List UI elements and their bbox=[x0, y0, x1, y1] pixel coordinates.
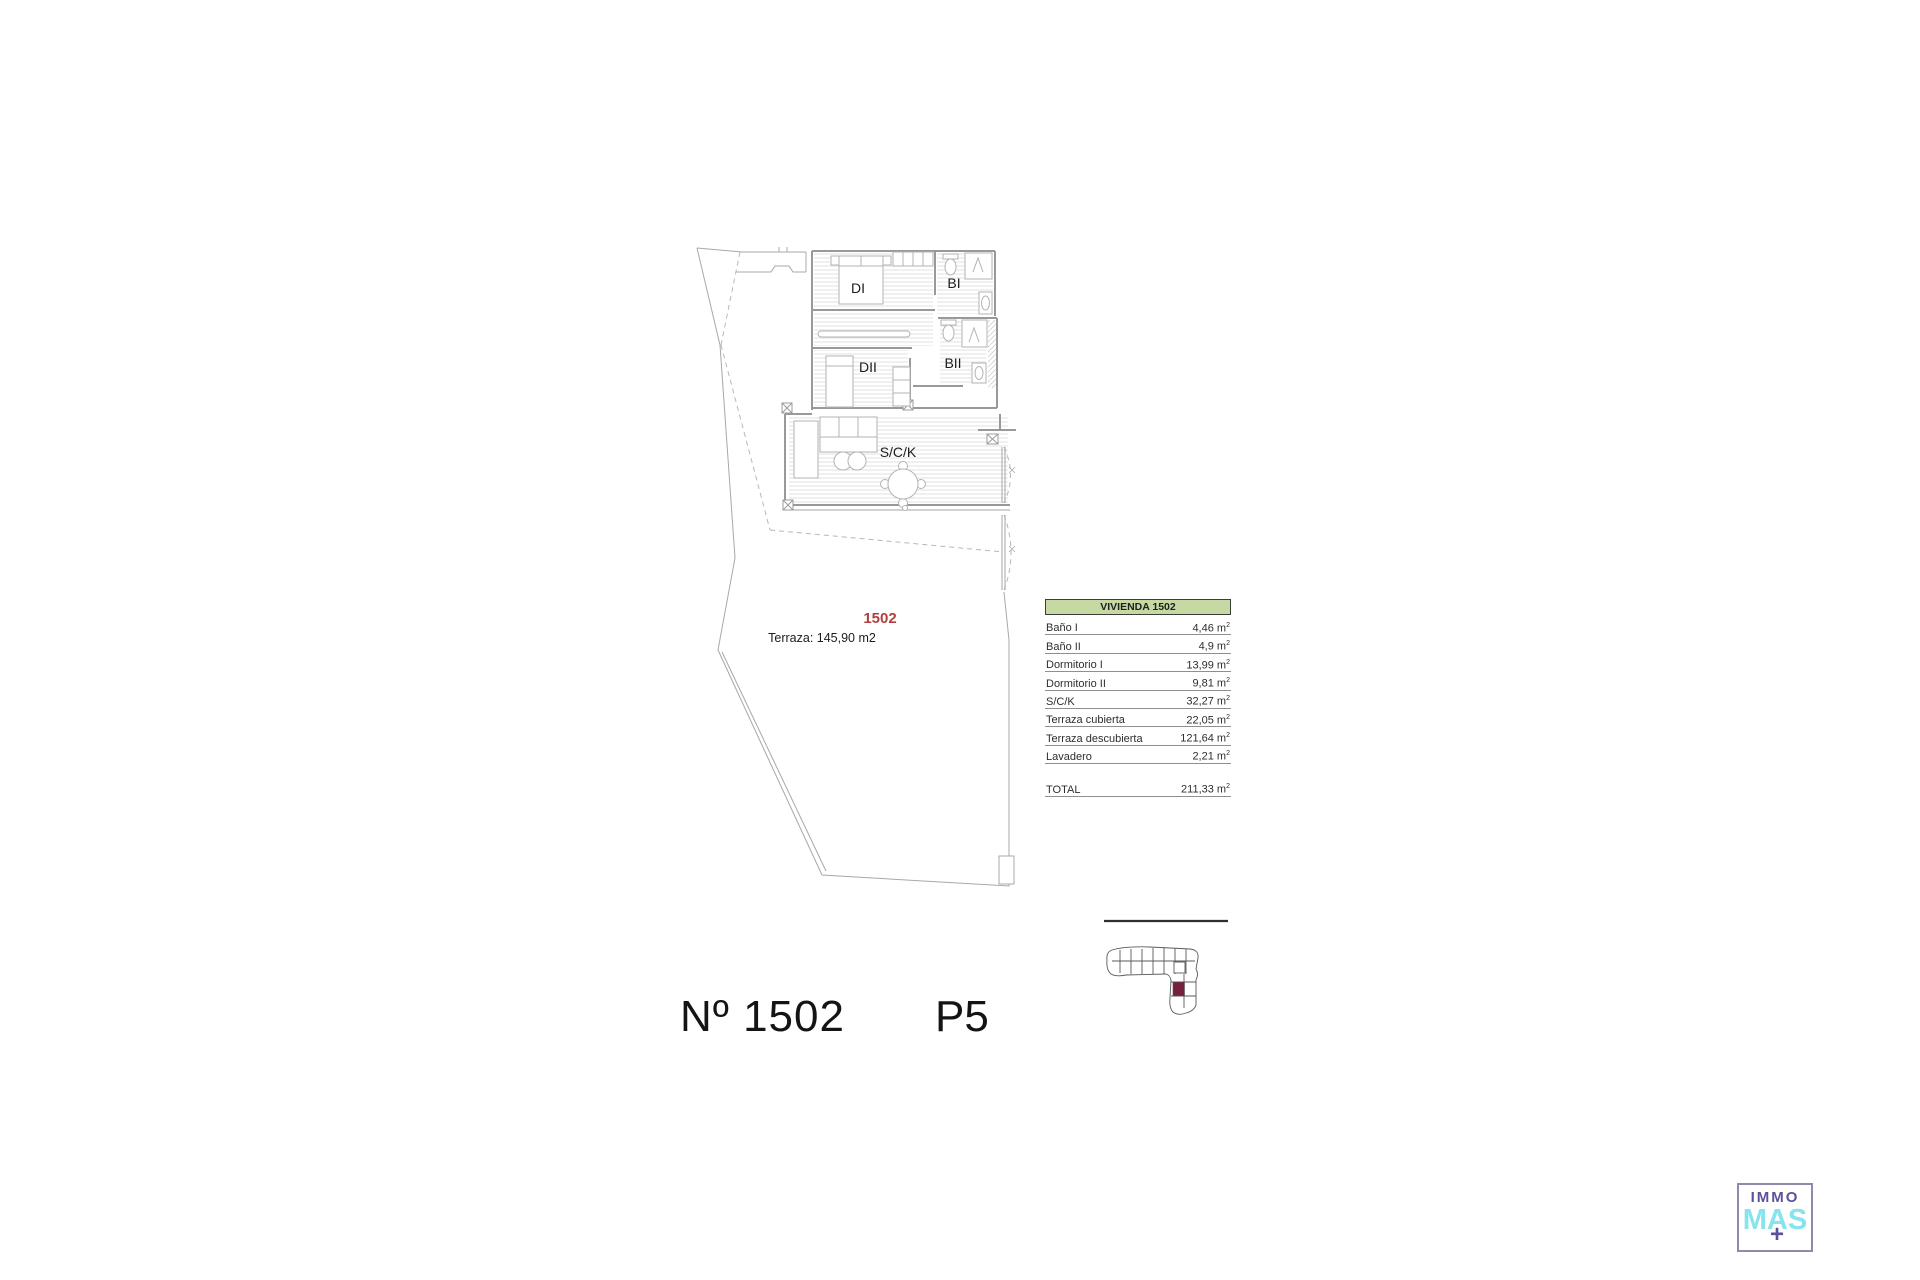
room-label-bii: BII bbox=[944, 355, 961, 371]
table-row: Baño II 4,9 m2 bbox=[1045, 635, 1231, 653]
row-value: 32,27 m2 bbox=[1186, 695, 1230, 708]
row-value: 13,99 m2 bbox=[1186, 659, 1230, 672]
row-label: Dormitorio II bbox=[1046, 678, 1106, 690]
row-label: Dormitorio I bbox=[1046, 659, 1103, 671]
table-total-row: TOTAL 211,33 m2 bbox=[1045, 778, 1231, 796]
total-value: 211,33 m2 bbox=[1181, 783, 1230, 796]
row-label: Baño I bbox=[1046, 622, 1078, 634]
table-row: Dormitorio II 9,81 m2 bbox=[1045, 672, 1231, 690]
table-row: Dormitorio I 13,99 m2 bbox=[1045, 654, 1231, 672]
table-row: S/C/K 32,27 m2 bbox=[1045, 691, 1231, 709]
footer-unit-number: Nº 1502 bbox=[680, 992, 845, 1042]
immomas-logo: IMMO MAS + bbox=[1737, 1183, 1813, 1252]
logo-line1: IMMO bbox=[1739, 1190, 1811, 1205]
row-value: 4,46 m2 bbox=[1192, 622, 1230, 635]
footer-floor-number: P5 bbox=[935, 992, 989, 1042]
unit-number-label: 1502 bbox=[863, 610, 896, 627]
room-label-dii: DII bbox=[859, 359, 877, 375]
row-value: 4,9 m2 bbox=[1199, 640, 1230, 653]
table-row: Terraza descubierta 121,64 m2 bbox=[1045, 727, 1231, 745]
table-row: Baño I 4,46 m2 bbox=[1045, 617, 1231, 635]
logo-plus-icon: + bbox=[1770, 1221, 1784, 1249]
row-label: Terraza descubierta bbox=[1046, 733, 1143, 745]
floor-plan: DI BI DII BII S/C/K 1502 Terraza: 145,90… bbox=[690, 230, 1040, 920]
terrace-area-label: Terraza: 145,90 m2 bbox=[768, 631, 876, 645]
room-label-bi: BI bbox=[947, 275, 960, 291]
area-table-header: VIVIENDA 1502 bbox=[1045, 599, 1231, 615]
row-value: 22,05 m2 bbox=[1186, 714, 1230, 727]
total-label: TOTAL bbox=[1046, 784, 1080, 796]
row-value: 2,21 m2 bbox=[1192, 750, 1230, 763]
table-row: Lavadero 2,21 m2 bbox=[1045, 746, 1231, 764]
row-value: 121,64 m2 bbox=[1180, 732, 1230, 745]
row-label: Baño II bbox=[1046, 641, 1081, 653]
row-label: Terraza cubierta bbox=[1046, 714, 1125, 726]
table-row: Terraza cubierta 22,05 m2 bbox=[1045, 709, 1231, 727]
row-label: S/C/K bbox=[1046, 696, 1075, 708]
building-locator bbox=[1095, 912, 1237, 1024]
row-value: 9,81 m2 bbox=[1192, 677, 1230, 690]
highlighted-unit bbox=[1173, 982, 1185, 996]
row-label: Lavadero bbox=[1046, 751, 1092, 763]
room-label-sck: S/C/K bbox=[880, 444, 917, 460]
room-label-di: DI bbox=[851, 280, 865, 296]
area-table: VIVIENDA 1502 Baño I 4,46 m2 Baño II 4,9… bbox=[1045, 599, 1231, 797]
